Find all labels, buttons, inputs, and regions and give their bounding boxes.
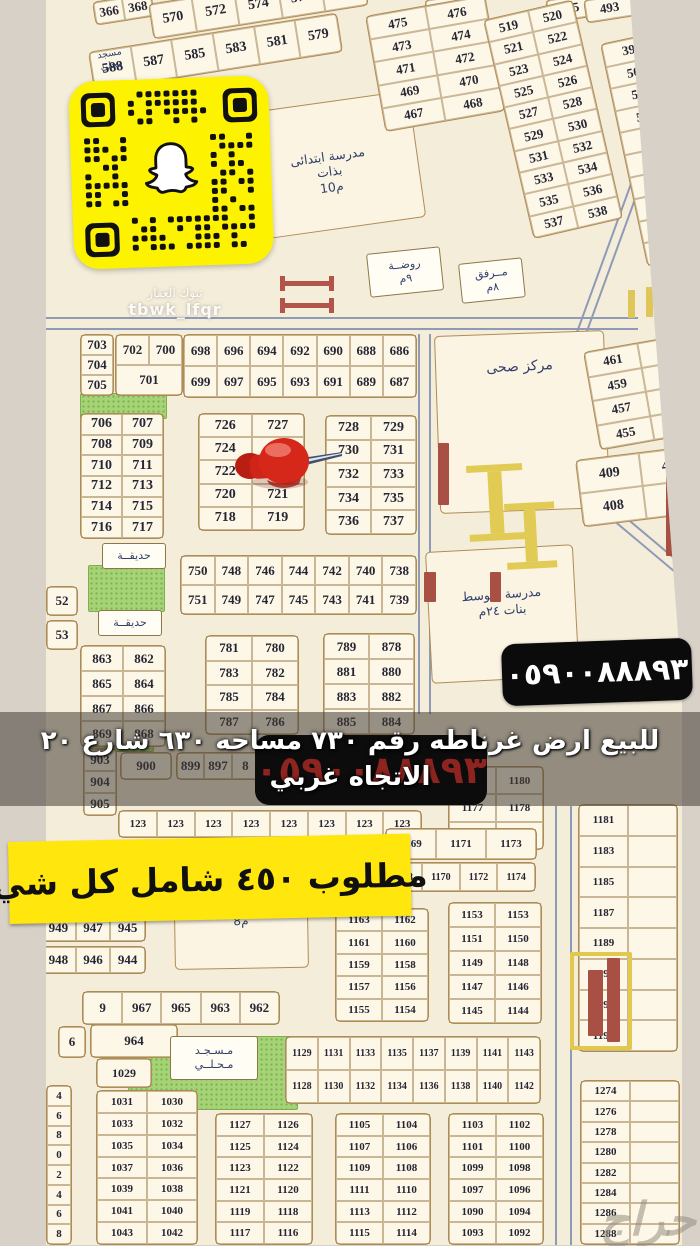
building-mark [646, 287, 653, 317]
plot-cell: 713 [122, 476, 163, 497]
plot-cell: 1154 [382, 999, 428, 1021]
plot-block: 46802468 [46, 1085, 72, 1245]
qr-dot [204, 224, 210, 230]
plot-cell: 737 [371, 510, 416, 534]
plot-cell: 1185 [579, 867, 628, 898]
plot-cell: 708 [81, 435, 122, 456]
plot-cell: 1101 [449, 1136, 496, 1158]
qr-dot [132, 218, 138, 224]
mosque-outline [570, 952, 632, 1050]
plot-cell [628, 1020, 677, 1051]
plot-cell: 1092 [496, 1222, 543, 1244]
plot-cell: 123 [308, 811, 346, 837]
qr-dot [222, 224, 228, 230]
plot-cell: 706 [81, 414, 122, 435]
photo-margin-left [0, 0, 46, 1245]
plot-block: 703704705 [80, 334, 114, 396]
qr-dot [160, 244, 166, 250]
plot-cell: 709 [122, 435, 163, 456]
qr-dot [211, 152, 217, 158]
plot-cell: 742 [315, 556, 349, 585]
qr-dot [211, 179, 217, 185]
qr-dot [237, 142, 243, 148]
plot-cell: 748 [215, 556, 249, 585]
qr-dot [241, 241, 247, 247]
caption-band: ٠٥٩٠٠٨٨٨٩٣ للبيع ارض غرناطه رقم ٧٣٠ مساح… [0, 712, 700, 806]
qr-dot [112, 164, 118, 170]
plot-cell: 1110 [383, 1179, 430, 1201]
watermark-handle: tbwk_lfqr [105, 300, 245, 319]
qr-dot [187, 243, 193, 249]
plot-cell: 948 [41, 947, 76, 973]
plot-cell: 1043 [97, 1222, 147, 1244]
qr-dot [177, 225, 183, 231]
plot-cell: 493 [584, 0, 635, 23]
plot-cell: 1096 [496, 1179, 543, 1201]
plot-cell: 1031 [97, 1091, 147, 1113]
plot-cell: 1030 [147, 1091, 197, 1113]
plot-cell: 1097 [449, 1179, 496, 1201]
qr-dot [95, 183, 101, 189]
plot-cell: 1142 [508, 1070, 540, 1103]
plot-block: 1029 [96, 1058, 152, 1088]
plot-cell: 1114 [383, 1222, 430, 1244]
qr-dot [248, 187, 254, 193]
qr-dot [169, 243, 175, 249]
plot-cell: 1138 [445, 1070, 477, 1103]
plot-cell: 1280 [581, 1142, 630, 1162]
plot-cell: 862 [123, 646, 165, 671]
plot-cell: 1034 [147, 1135, 197, 1157]
plot-cell: 1157 [336, 976, 382, 998]
plot-cell: 574 [234, 0, 282, 25]
map-pin-icon [222, 424, 344, 498]
plot-cell [630, 1142, 679, 1162]
plot-block: 702700701 [115, 334, 183, 396]
plot-cell: 1124 [264, 1136, 312, 1158]
plot-cell: 1125 [216, 1136, 264, 1158]
plot-cell: 746 [248, 556, 282, 585]
qr-dot [205, 242, 211, 248]
plot-cell: 699 [184, 366, 217, 397]
qr-dot [104, 183, 110, 189]
plot-block: 5195205215225235245255265275285295305315… [483, 0, 623, 239]
plot-cell: 700 [149, 335, 182, 365]
qr-dot [122, 182, 128, 188]
road [418, 334, 431, 714]
qr-dot [137, 118, 143, 124]
plot-cell: 1132 [350, 1070, 382, 1103]
building-bar [490, 572, 501, 602]
plot-cell: 1104 [383, 1114, 430, 1136]
qr-dot [177, 216, 183, 222]
plot-cell: 1122 [264, 1157, 312, 1179]
plot-cell: 687 [383, 366, 416, 397]
plot-cell: 1140 [477, 1070, 509, 1103]
plot-cell: 572 [192, 0, 240, 32]
plot-cell: 707 [122, 414, 163, 435]
plot-cell: 578 [320, 0, 368, 11]
plot-cell: 408 [580, 486, 647, 526]
plot-block: 53 [46, 620, 78, 650]
qr-dot [85, 156, 91, 162]
plot-cell: 1038 [147, 1178, 197, 1200]
plot-cell: 1173 [486, 829, 536, 859]
qr-dot [150, 235, 156, 241]
qr-dot [133, 245, 139, 251]
plot-cell: 698 [184, 335, 217, 366]
plot-cell: 1112 [383, 1201, 430, 1223]
plot-cell: 1102 [496, 1114, 543, 1136]
plot-cell: 1158 [382, 954, 428, 976]
plot-cell: 694 [250, 335, 283, 366]
map-label: روضــة٩م [366, 246, 444, 297]
qr-dot [211, 161, 217, 167]
plot-cell: 1145 [449, 999, 495, 1023]
plot-cell: 741 [349, 585, 383, 614]
plot-cell: 688 [350, 335, 383, 366]
plot-cell: 1029 [97, 1059, 151, 1087]
plot-cell: 731 [371, 440, 416, 464]
watermark-arabic: تبوك العقار [105, 286, 245, 300]
plot-cell: 689 [350, 366, 383, 397]
plot-cell [630, 1122, 679, 1142]
plot-cell: 1032 [147, 1113, 197, 1135]
plot-block: 1127112611251124112311221121112011191118… [215, 1113, 313, 1245]
plot-cell: 878 [369, 634, 414, 659]
plot-cell: 750 [181, 556, 215, 585]
plot-cell [628, 990, 677, 1021]
plot-cell: 783 [206, 661, 252, 686]
qr-dot [112, 173, 118, 179]
qr-dot [195, 233, 201, 239]
plot-cell: 1127 [216, 1114, 264, 1136]
qr-dot [102, 147, 108, 153]
qr-dot [229, 151, 235, 157]
plot-cell: 1129 [286, 1037, 318, 1070]
plot-cell: 1278 [581, 1122, 630, 1142]
plot-cell [630, 1101, 679, 1121]
plot-cell: 1037 [97, 1157, 147, 1179]
plot-cell: 123 [157, 811, 195, 837]
qr-dot [195, 215, 201, 221]
plot-cell: 1106 [383, 1136, 430, 1158]
plot-cell [628, 836, 677, 867]
plot-cell: 1100 [496, 1136, 543, 1158]
qr-dot [172, 90, 178, 96]
plot-cell: 9 [83, 992, 122, 1024]
plot-cell: 570 [149, 0, 197, 38]
qr-dot [232, 241, 238, 247]
plot-cell: 1103 [449, 1114, 496, 1136]
qr-dot [173, 99, 179, 105]
qr-dot [247, 169, 253, 175]
plot-block: 1103110211011100109910981097109610901094… [448, 1113, 544, 1245]
plot-cell: 696 [217, 335, 250, 366]
plot-block: 7507487467447427407387517497477457437417… [180, 555, 417, 615]
qr-dot [229, 160, 235, 166]
qr-dot [248, 205, 254, 211]
plot-cell: 962 [240, 992, 279, 1024]
plot-cell: 1119 [216, 1201, 264, 1223]
plot-cell: 1115 [336, 1222, 383, 1244]
qr-dot [136, 91, 142, 97]
plot-cell: 1118 [264, 1201, 312, 1223]
plot-cell: 1108 [383, 1157, 430, 1179]
plot-cell: 1116 [264, 1222, 312, 1244]
plot-block: 1105110411071106110911081111111011131112… [335, 1113, 431, 1245]
qr-dot [141, 235, 147, 241]
plot-cell: 579 [295, 14, 342, 58]
qr-dot [150, 226, 156, 232]
plot-cell: 53 [47, 621, 77, 649]
qr-dot [85, 174, 91, 180]
plot-cell: 1153 [495, 903, 541, 927]
qr-dot [86, 201, 92, 207]
plot-cell: 1107 [336, 1136, 383, 1158]
plot-cell: 743 [315, 585, 349, 614]
plot-cell: 716 [81, 517, 122, 538]
watermark: تبوك العقار tbwk_lfqr [105, 286, 245, 328]
plot-cell: 0 [47, 1145, 71, 1165]
plot-cell: 715 [122, 497, 163, 518]
plot-cell: 882 [369, 684, 414, 709]
plot-cell: 1139 [445, 1037, 477, 1070]
plot-cell: 8 [47, 1126, 71, 1146]
qr-dot [164, 99, 170, 105]
qr-dot [154, 91, 160, 97]
plot-cell: 1126 [264, 1114, 312, 1136]
plot-cell: 751 [181, 585, 215, 614]
map-label: حديقــة [98, 610, 162, 636]
qr-dot [219, 134, 225, 140]
plot-cell: 1090 [449, 1201, 496, 1223]
plot-cell: 714 [81, 497, 122, 518]
qr-dot [210, 134, 216, 140]
listing-photo: 3663685705725745765785755774934785885875… [0, 0, 700, 1245]
qr-finder-square [85, 222, 120, 257]
building-bar [438, 443, 449, 505]
plot-cell: 1036 [147, 1157, 197, 1179]
plot-cell: 1160 [382, 931, 428, 953]
qr-dot [113, 182, 119, 188]
plot-cell: 1143 [508, 1037, 540, 1070]
map-label: مدرسة متوسطبنات ٢٤م [436, 569, 568, 636]
qr-dot [84, 147, 90, 153]
qr-dot [212, 188, 218, 194]
plot-cell: 1131 [318, 1037, 350, 1070]
plot-cell: 1151 [449, 927, 495, 951]
plot-cell [628, 959, 677, 990]
plot-cell: 744 [282, 556, 316, 585]
qr-dot [95, 192, 101, 198]
plot-cell: 1111 [336, 1179, 383, 1201]
building-bracket [280, 276, 334, 291]
qr-dot [141, 226, 147, 232]
qr-dot [191, 108, 197, 114]
qr-dot [163, 90, 169, 96]
map-label: حديقــة [102, 543, 166, 569]
qr-dot [181, 90, 187, 96]
plot-cell: 123 [346, 811, 384, 837]
qr-dot [128, 110, 134, 116]
plot-block: 1153115311511150114911481147114611451144 [448, 902, 542, 1024]
building-bracket [280, 298, 334, 313]
qr-dot [164, 108, 170, 114]
plot-cell: 782 [252, 661, 298, 686]
plot-cell: 1123 [216, 1157, 264, 1179]
plot-block: 6986966946926906886866996976956936916896… [183, 334, 417, 398]
qr-dot [155, 100, 161, 106]
qr-dot [173, 108, 179, 114]
plot-cell: 4 [47, 1086, 71, 1106]
plot-cell: 946 [76, 947, 111, 973]
plot-cell: 944 [110, 947, 145, 973]
plot-cell: 1171 [436, 829, 486, 859]
qr-dot [221, 206, 227, 212]
qr-dot [247, 178, 253, 184]
qr-dot [212, 206, 218, 212]
qr-dot [231, 232, 237, 238]
plot-cell: 1035 [97, 1135, 147, 1157]
plot-cell: 1156 [382, 976, 428, 998]
plot-cell: 693 [283, 366, 316, 397]
plot-cell: 1147 [449, 975, 495, 999]
qr-dot [93, 138, 99, 144]
plot-cell: 719 [252, 507, 305, 530]
qr-dot [228, 142, 234, 148]
qr-dot [212, 197, 218, 203]
plot-cell [630, 1081, 679, 1101]
building-bar [424, 572, 436, 602]
qr-dot [146, 118, 152, 124]
plot-block: 1129113111331135113711391141114311281130… [285, 1036, 541, 1104]
building-mark [628, 290, 635, 318]
snapchat-qr-code[interactable] [68, 75, 274, 270]
plot-cell: 739 [382, 585, 416, 614]
plot-cell: 6 [59, 1027, 85, 1057]
caption-line-2: الاتجاه غربي [270, 762, 431, 792]
plot-cell: 864 [123, 671, 165, 696]
plot-cell: 1098 [496, 1157, 543, 1179]
plot-cell: 123 [195, 811, 233, 837]
qr-dot [195, 224, 201, 230]
qr-dot [146, 109, 152, 115]
plot-cell: 967 [122, 992, 161, 1024]
qr-dot [120, 146, 126, 152]
qr-finder-square [222, 87, 257, 122]
plot-cell: 1128 [286, 1070, 318, 1103]
plot-cell: 729 [371, 416, 416, 440]
plot-cell: 1105 [336, 1114, 383, 1136]
qr-dot [128, 101, 134, 107]
plot-cell: 710 [81, 455, 122, 476]
qr-dot [84, 138, 90, 144]
qr-dot [204, 233, 210, 239]
plot-cell: 718 [199, 507, 252, 530]
plot-cell: 1136 [413, 1070, 445, 1103]
plot-cell: 1117 [216, 1222, 264, 1244]
plot-cell: 1134 [381, 1070, 413, 1103]
phone-number-badge: ٠٥٩٠٠٨٨٨٩٣ [501, 638, 693, 707]
plot-cell: 1133 [350, 1037, 382, 1070]
plot-cell: 1276 [581, 1101, 630, 1121]
qr-dot [229, 169, 235, 175]
plot-cell: 1144 [495, 999, 541, 1023]
qr-dot [213, 233, 219, 239]
plot-cell [628, 805, 677, 836]
plot-cell: 1041 [97, 1200, 147, 1222]
plot-cell: 1146 [495, 975, 541, 999]
plot-block: 964 [90, 1024, 178, 1058]
qr-dot [93, 147, 99, 153]
qr-dot [146, 100, 152, 106]
qr-dot [196, 242, 202, 248]
qr-dot [182, 108, 188, 114]
plot-cell: 1039 [97, 1178, 147, 1200]
map-label: مدرسة ابتدائىبذات10م [268, 120, 391, 223]
qr-dot [86, 192, 92, 198]
plot-cell: 1120 [264, 1179, 312, 1201]
plot-cell: 1150 [495, 927, 541, 951]
plot-cell: 1121 [216, 1179, 264, 1201]
building-ibeam [504, 501, 557, 570]
qr-dot [200, 107, 206, 113]
qr-dot [122, 191, 128, 197]
plot-cell: 1040 [147, 1200, 197, 1222]
plot-cell: 1282 [581, 1163, 630, 1183]
plot-cell: 1183 [579, 836, 628, 867]
plot-cell: 703 [81, 335, 113, 355]
plot-cell: 965 [161, 992, 200, 1024]
plot-cell: 1093 [449, 1222, 496, 1244]
plot-block: 366368 [92, 0, 155, 26]
plot-cell: 747 [248, 585, 282, 614]
plot-cell: 366 [93, 0, 125, 25]
plot-block: 9967965963962 [82, 991, 280, 1025]
qr-dot [145, 91, 151, 97]
plot-cell [628, 867, 677, 898]
plot-cell: 702 [116, 335, 149, 365]
plot-block: 52 [46, 586, 78, 616]
plot-block: 1031103010331032103510341037103610391038… [96, 1090, 198, 1245]
qr-dot [151, 244, 157, 250]
qr-dot [230, 196, 236, 202]
qr-dot [94, 156, 100, 162]
plot-cell: 1141 [477, 1037, 509, 1070]
plot-cell: 1033 [97, 1113, 147, 1135]
qr-dot [103, 165, 109, 171]
plot-cell: 704 [81, 355, 113, 375]
plot-cell: 780 [252, 636, 298, 661]
plot-cell: 6 [47, 1106, 71, 1126]
qr-dot [112, 155, 118, 161]
qr-dot [214, 242, 220, 248]
plot-cell: 789 [324, 634, 369, 659]
plot-cell: 880 [369, 659, 414, 684]
plot-cell: 964 [91, 1025, 177, 1057]
plot-block: 706707708709710711712713714715716717 [80, 413, 164, 539]
plot-cell: 1113 [336, 1201, 383, 1223]
plot-block: 493 [583, 0, 636, 24]
qr-dot [221, 188, 227, 194]
qr-dot [159, 235, 165, 241]
qr-finder-square [80, 92, 115, 127]
plot-cell: 701 [116, 365, 182, 395]
plot-cell: 883 [324, 684, 369, 709]
plot-cell: 1094 [496, 1201, 543, 1223]
plot-cell: 740 [349, 556, 383, 585]
